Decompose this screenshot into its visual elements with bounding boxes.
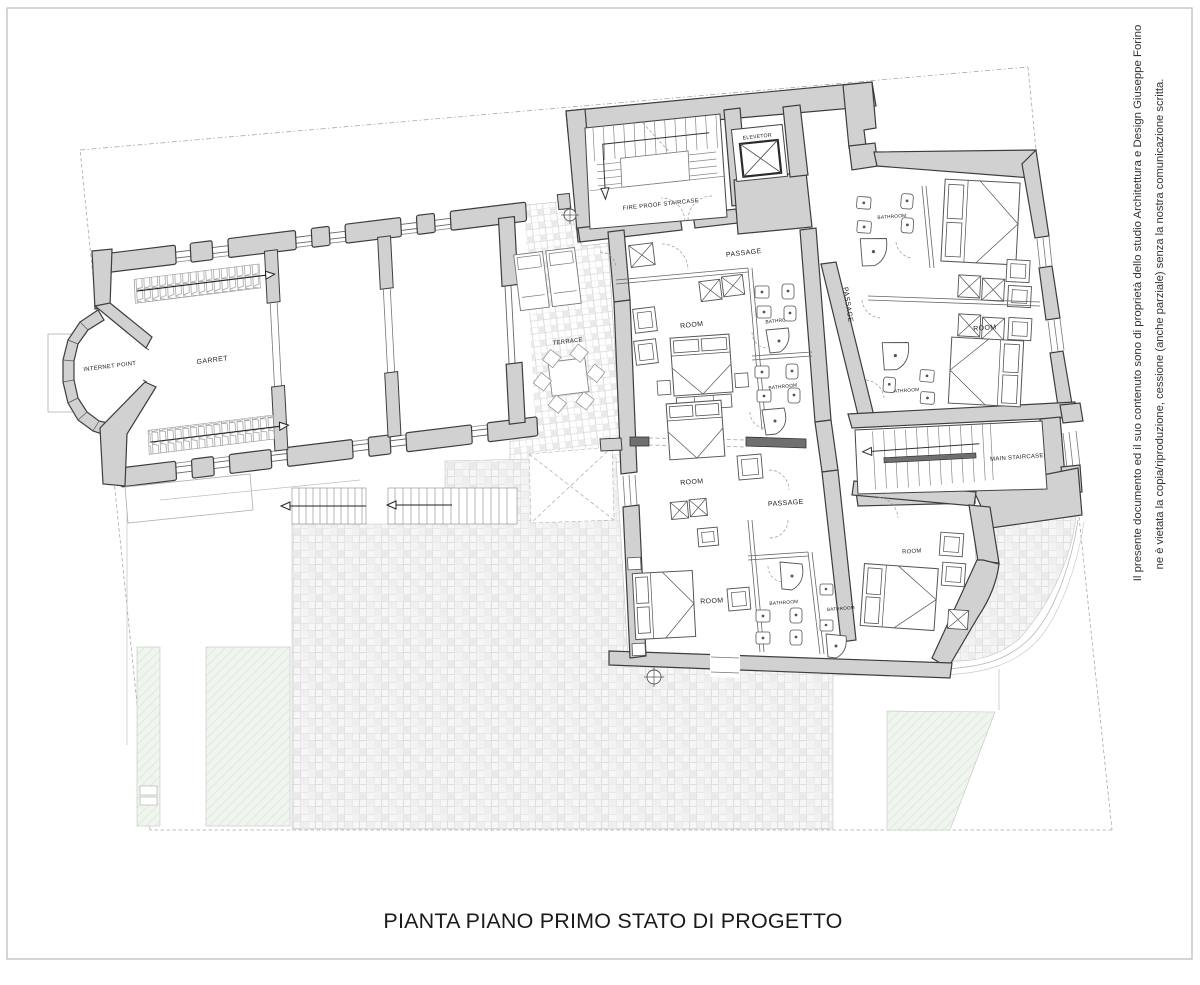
svg-text:Il presente documento ed il su: Il presente documento ed il suo contenut… xyxy=(1132,25,1144,582)
svg-text:ne è vietata la copia/riproduz: ne è vietata la copia/riproduzione, cess… xyxy=(1154,79,1166,570)
svg-text:ROOM: ROOM xyxy=(700,597,724,605)
svg-text:PIANTA PIANO PRIMO STATO DI PR: PIANTA PIANO PRIMO STATO DI PROGETTO xyxy=(383,909,842,933)
